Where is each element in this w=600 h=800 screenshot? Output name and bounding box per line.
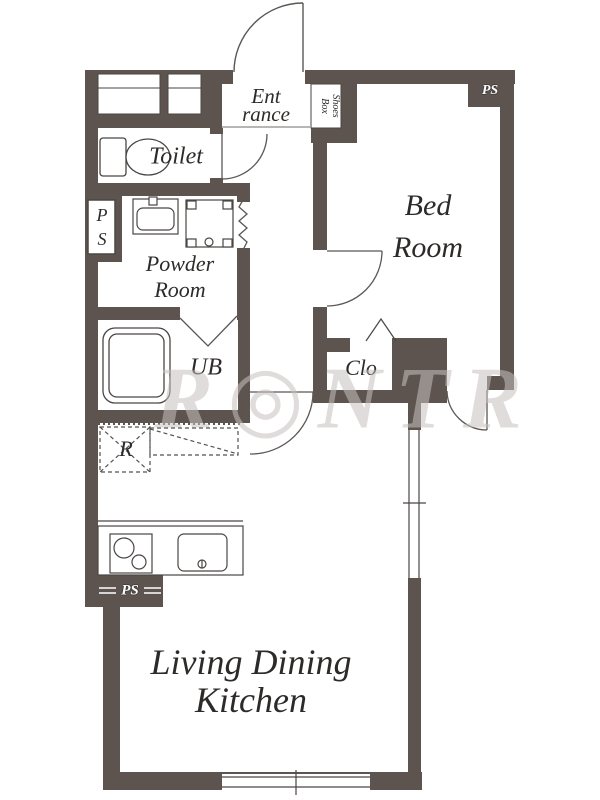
closet-folding-door-icon	[366, 319, 396, 341]
ub-door-icon	[180, 316, 237, 346]
shoes-box-label: Shoes Box	[311, 84, 341, 128]
bedroom-door-arc	[327, 251, 382, 306]
entrance-door-arc	[234, 3, 303, 72]
powder-room-label: Powder Room	[146, 251, 214, 303]
ldk-label: Living Dining Kitchen	[150, 643, 351, 719]
ps-kitchen-label: PS	[121, 583, 139, 600]
meter-box-icon	[98, 74, 201, 114]
window-right	[403, 430, 426, 578]
bathtub-icon	[103, 328, 170, 403]
window-bottom	[222, 770, 370, 795]
toilet-door-arc	[222, 133, 267, 179]
ldk-door-arc	[250, 392, 313, 454]
closet-label: Clo	[345, 355, 377, 381]
balcony-door-arc	[447, 390, 487, 430]
unit-bath-label: UB	[190, 355, 222, 382]
refrigerator-label: R	[119, 436, 132, 462]
washing-machine-icon	[186, 200, 233, 247]
ps-bedroom-label: PS	[482, 83, 498, 99]
toilet-label: Toilet	[149, 144, 203, 171]
stove-icon	[110, 534, 152, 573]
entrance-label: Ent rance	[242, 87, 290, 123]
accordion-door-icon	[239, 200, 247, 250]
washbasin-icon	[133, 197, 178, 234]
ps-shaft-label: P S	[97, 203, 108, 251]
sink-icon	[178, 534, 227, 571]
floor-plan: Ent rance Shoes Box Toilet P S Powder Ro…	[0, 0, 600, 800]
bedroom-label: Bed Room	[393, 185, 463, 269]
